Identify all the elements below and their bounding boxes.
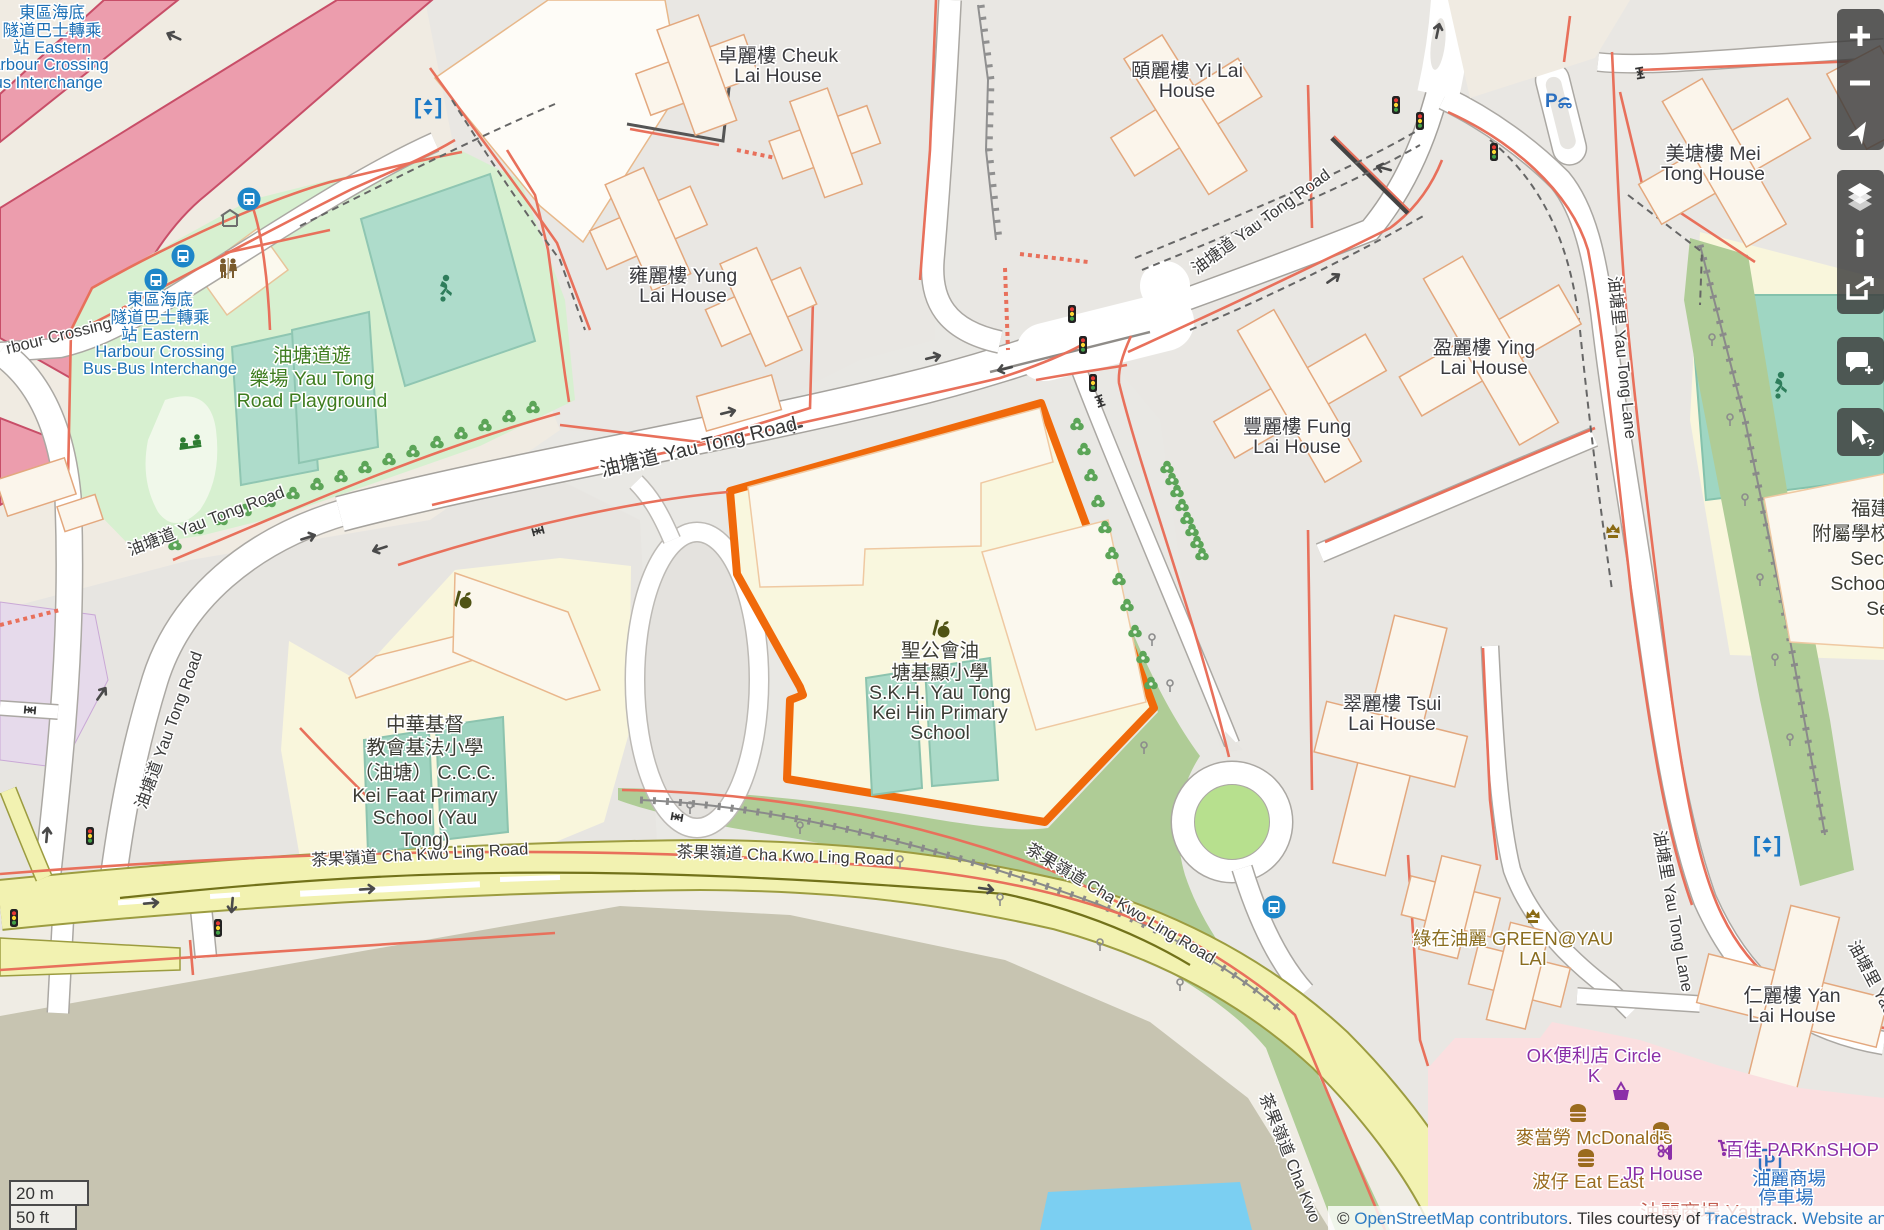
svg-text:附屬學校: 附屬學校 xyxy=(1812,523,1884,545)
svg-text:翠麗樓 Tsui: 翠麗樓 Tsui xyxy=(1343,693,1442,715)
svg-text:樂場 Yau Tong: 樂場 Yau Tong xyxy=(249,368,374,390)
svg-text:油麗商場: 油麗商場 xyxy=(1752,1168,1826,1189)
svg-text:Tong House: Tong House xyxy=(1661,163,1765,185)
svg-text:20 m: 20 m xyxy=(16,1184,54,1203)
svg-text:Lai House: Lai House xyxy=(1253,436,1341,458)
svg-text:仁麗樓 Yan: 仁麗樓 Yan xyxy=(1743,985,1840,1007)
svg-text:Bus-Bus Interchange: Bus-Bus Interchange xyxy=(83,360,237,378)
svg-text:東區海底: 東區海底 xyxy=(127,290,193,309)
svg-text:Sec: Sec xyxy=(1850,548,1884,570)
svg-text:Se: Se xyxy=(1866,598,1884,620)
svg-text:Harbour Crossing: Harbour Crossing xyxy=(95,343,224,361)
svg-text:School (Yau: School (Yau xyxy=(373,807,478,829)
svg-text:塘基顯小學: 塘基顯小學 xyxy=(891,662,989,684)
svg-text:S.K.H. Yau Tong: S.K.H. Yau Tong xyxy=(869,682,1011,704)
svg-text:麥當勞 McDonald's: 麥當勞 McDonald's xyxy=(1516,1127,1673,1148)
svg-text:Road Playground: Road Playground xyxy=(237,390,388,412)
svg-text:美塘樓 Mei: 美塘樓 Mei xyxy=(1665,143,1760,165)
svg-text:油塘道遊: 油塘道遊 xyxy=(273,345,351,367)
svg-text:Lai House: Lai House xyxy=(1440,357,1528,379)
svg-text:?: ? xyxy=(1866,436,1875,453)
svg-text:Kei Hin Primary: Kei Hin Primary xyxy=(872,702,1008,724)
svg-text:停車場: 停車場 xyxy=(1758,1187,1814,1208)
svg-text:隧道巴士轉乘: 隧道巴士轉乘 xyxy=(3,21,102,40)
svg-text:Lai House: Lai House xyxy=(1348,713,1436,735)
svg-text:© OpenStreetMap contributors.: © OpenStreetMap contributors. Tiles cour… xyxy=(1337,1209,1884,1228)
svg-text:Harbour Crossing: Harbour Crossing xyxy=(0,56,109,74)
svg-text:聖公會油: 聖公會油 xyxy=(901,640,979,662)
svg-text:中華基督: 中華基督 xyxy=(386,714,464,736)
svg-text:東區海底: 東區海底 xyxy=(19,3,85,22)
svg-text:K: K xyxy=(1588,1065,1601,1086)
svg-text:Lai House: Lai House xyxy=(639,285,727,307)
svg-text:隧道巴士轉乘: 隧道巴士轉乘 xyxy=(111,308,210,327)
svg-text:福建: 福建 xyxy=(1851,498,1884,520)
svg-text:（油塘） C.C.C.: （油塘） C.C.C. xyxy=(354,762,496,784)
svg-text:Lai House: Lai House xyxy=(734,65,822,87)
svg-text:卓麗樓 Cheuk: 卓麗樓 Cheuk xyxy=(718,45,839,67)
svg-text:Lai House: Lai House xyxy=(1748,1005,1836,1027)
svg-text:百佳 PARKnSHOP: 百佳 PARKnSHOP xyxy=(1725,1139,1879,1160)
svg-text:School: School xyxy=(1830,573,1884,595)
svg-text:綠在油麗 GREEN@YAU: 綠在油麗 GREEN@YAU xyxy=(1413,928,1613,949)
svg-text:JP House: JP House xyxy=(1623,1163,1703,1184)
svg-text:-Bus Interchange: -Bus Interchange xyxy=(0,74,103,92)
svg-text:50 ft: 50 ft xyxy=(16,1208,49,1227)
svg-text:House: House xyxy=(1159,80,1215,102)
svg-text:教會基法小學: 教會基法小學 xyxy=(366,737,483,759)
svg-text:豐麗樓 Fung: 豐麗樓 Fung xyxy=(1243,416,1351,438)
svg-text:Kei Faat Primary: Kei Faat Primary xyxy=(352,785,497,807)
svg-text:School: School xyxy=(910,722,970,744)
svg-text:OK便利店 Circle: OK便利店 Circle xyxy=(1527,1045,1662,1066)
svg-text:頤麗樓 Yi Lai: 頤麗樓 Yi Lai xyxy=(1131,60,1243,82)
svg-text:站 Eastern: 站 Eastern xyxy=(121,325,199,344)
svg-text:站 Eastern: 站 Eastern xyxy=(13,38,91,57)
svg-text:Tong): Tong) xyxy=(401,829,450,851)
svg-text:LAI: LAI xyxy=(1519,948,1547,969)
svg-text:雍麗樓 Yung: 雍麗樓 Yung xyxy=(629,265,737,287)
svg-text:盈麗樓 Ying: 盈麗樓 Ying xyxy=(1433,337,1535,359)
